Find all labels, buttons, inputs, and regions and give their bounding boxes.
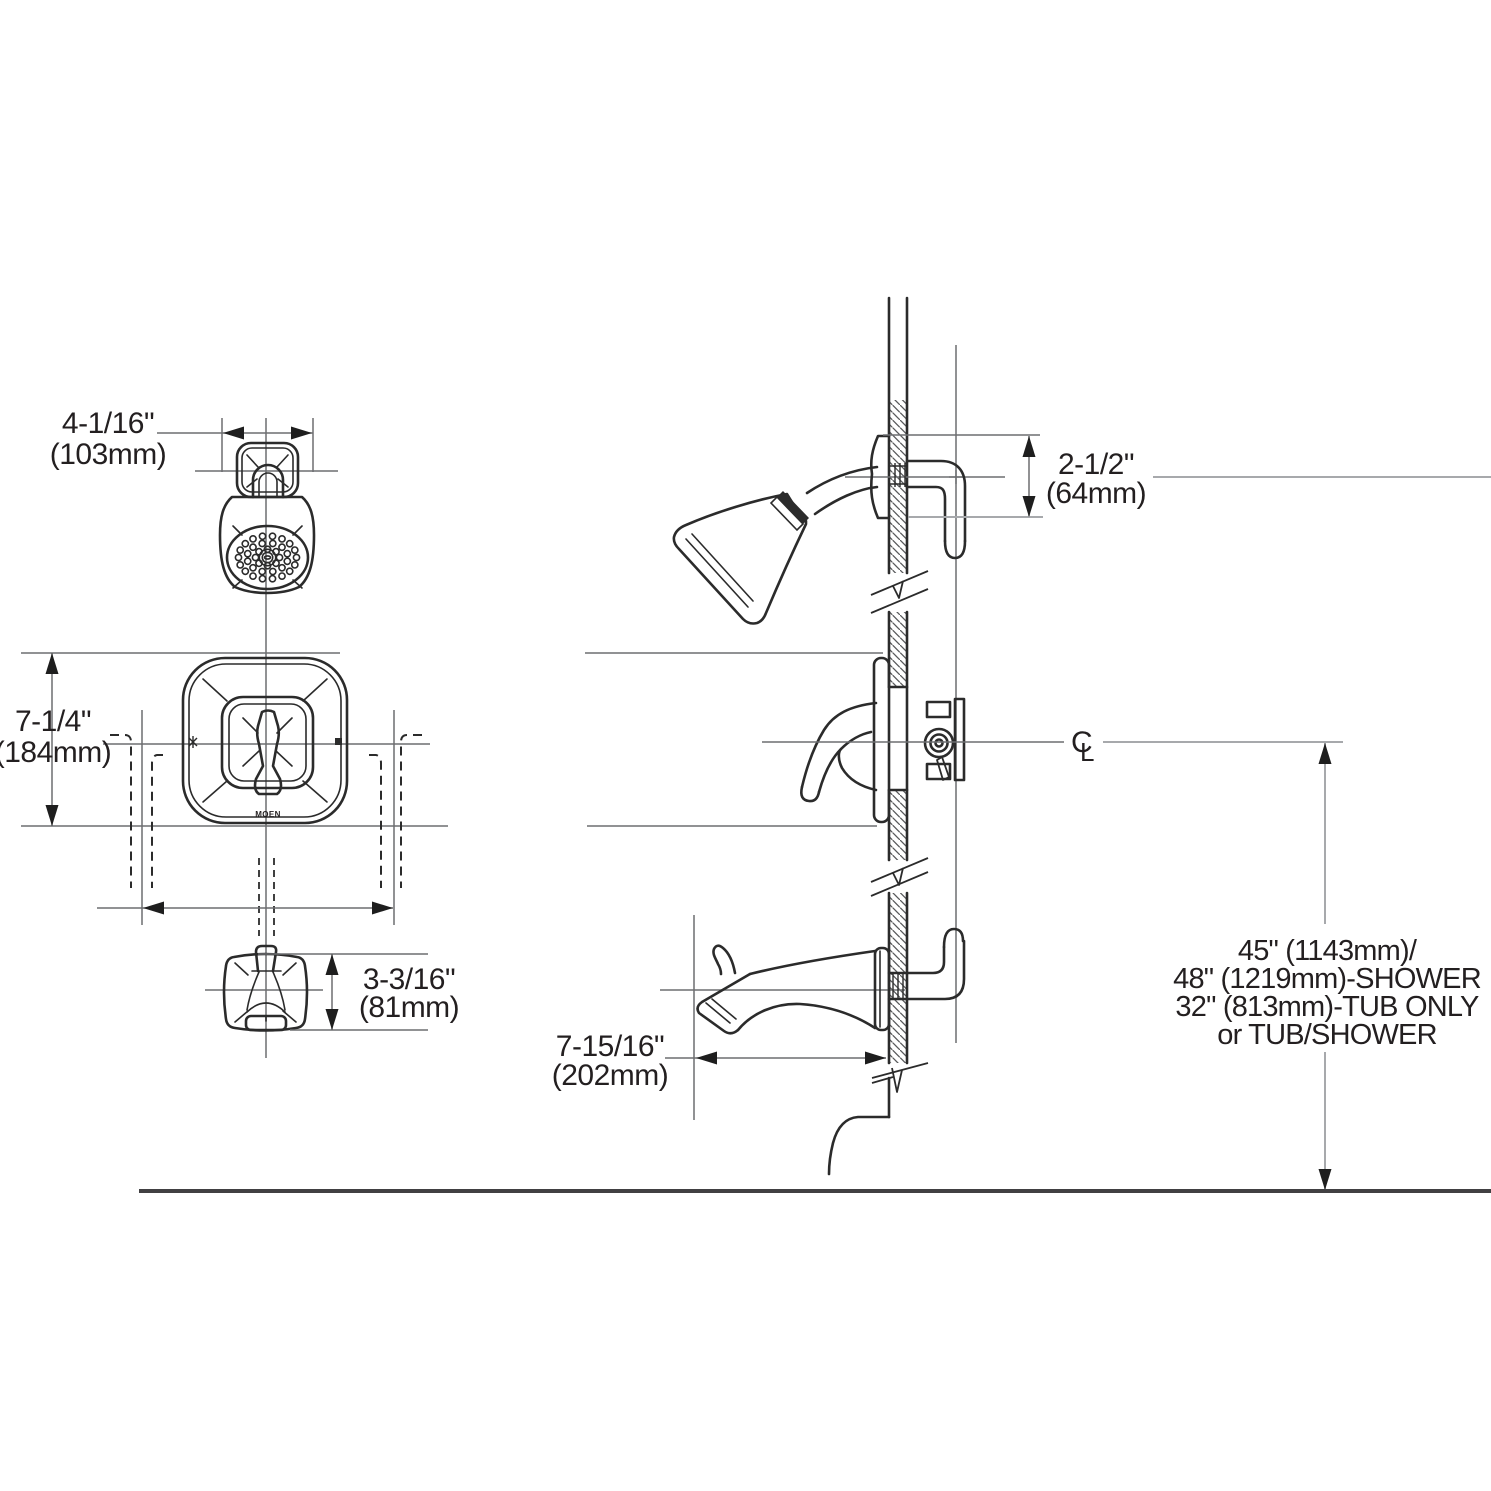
- head-collar: [777, 491, 809, 524]
- dim-arm-drop: 2-1/2" (64mm): [883, 435, 1491, 517]
- dim-spout-reach-mm: (202mm): [552, 1059, 669, 1092]
- dim-head-width-in: 4-1/16": [62, 407, 154, 440]
- enclosure-hidden-line-right-outer: [401, 735, 422, 888]
- dim-spout-height: 3-3/16" (81mm): [258, 954, 459, 1030]
- dim-head-width-mm: (103mm): [50, 438, 167, 471]
- enclosure-hidden-line-left-inner: [152, 755, 163, 888]
- side-view-tub-spout: [660, 929, 964, 1033]
- enclosure-hidden-line-right-inner: [369, 755, 381, 888]
- front-view-valve-trim: MOEN: [21, 653, 448, 936]
- brand-logo: MOEN: [255, 810, 281, 819]
- plate-screw-marks: [189, 736, 197, 748]
- dim-spout-height-mm: (81mm): [359, 991, 459, 1024]
- drawing-canvas: 4-1/16" (103mm) MOEN: [0, 0, 1491, 1491]
- dim-valve-height: 7-1/4" (184mm): [0, 653, 111, 826]
- centerline-symbol-l: L: [1080, 737, 1094, 767]
- dim-mounting-height: 45" (1143mm)/ 48" (1219mm)-SHOWER 32" (8…: [1173, 743, 1481, 1190]
- plate-screw-right: [335, 738, 342, 745]
- dim-mount-height-line4: or TUB/SHOWER: [1217, 1019, 1436, 1051]
- dim-valve-height-mm: (184mm): [0, 736, 111, 769]
- enclosure-hidden-line-left-outer: [110, 735, 131, 888]
- dim-head-width: 4-1/16" (103mm): [50, 407, 313, 472]
- front-view-tub-spout: [205, 946, 323, 1031]
- shower-tub-spec-drawing: 4-1/16" (103mm) MOEN: [0, 0, 1491, 1491]
- spray-nozzle-dots: [235, 533, 299, 582]
- side-view-valve: C L: [585, 653, 1343, 826]
- dim-arm-drop-mm: (64mm): [1046, 477, 1146, 510]
- tub-outline: [829, 1117, 889, 1174]
- dim-valve-height-in: 7-1/4": [15, 705, 91, 738]
